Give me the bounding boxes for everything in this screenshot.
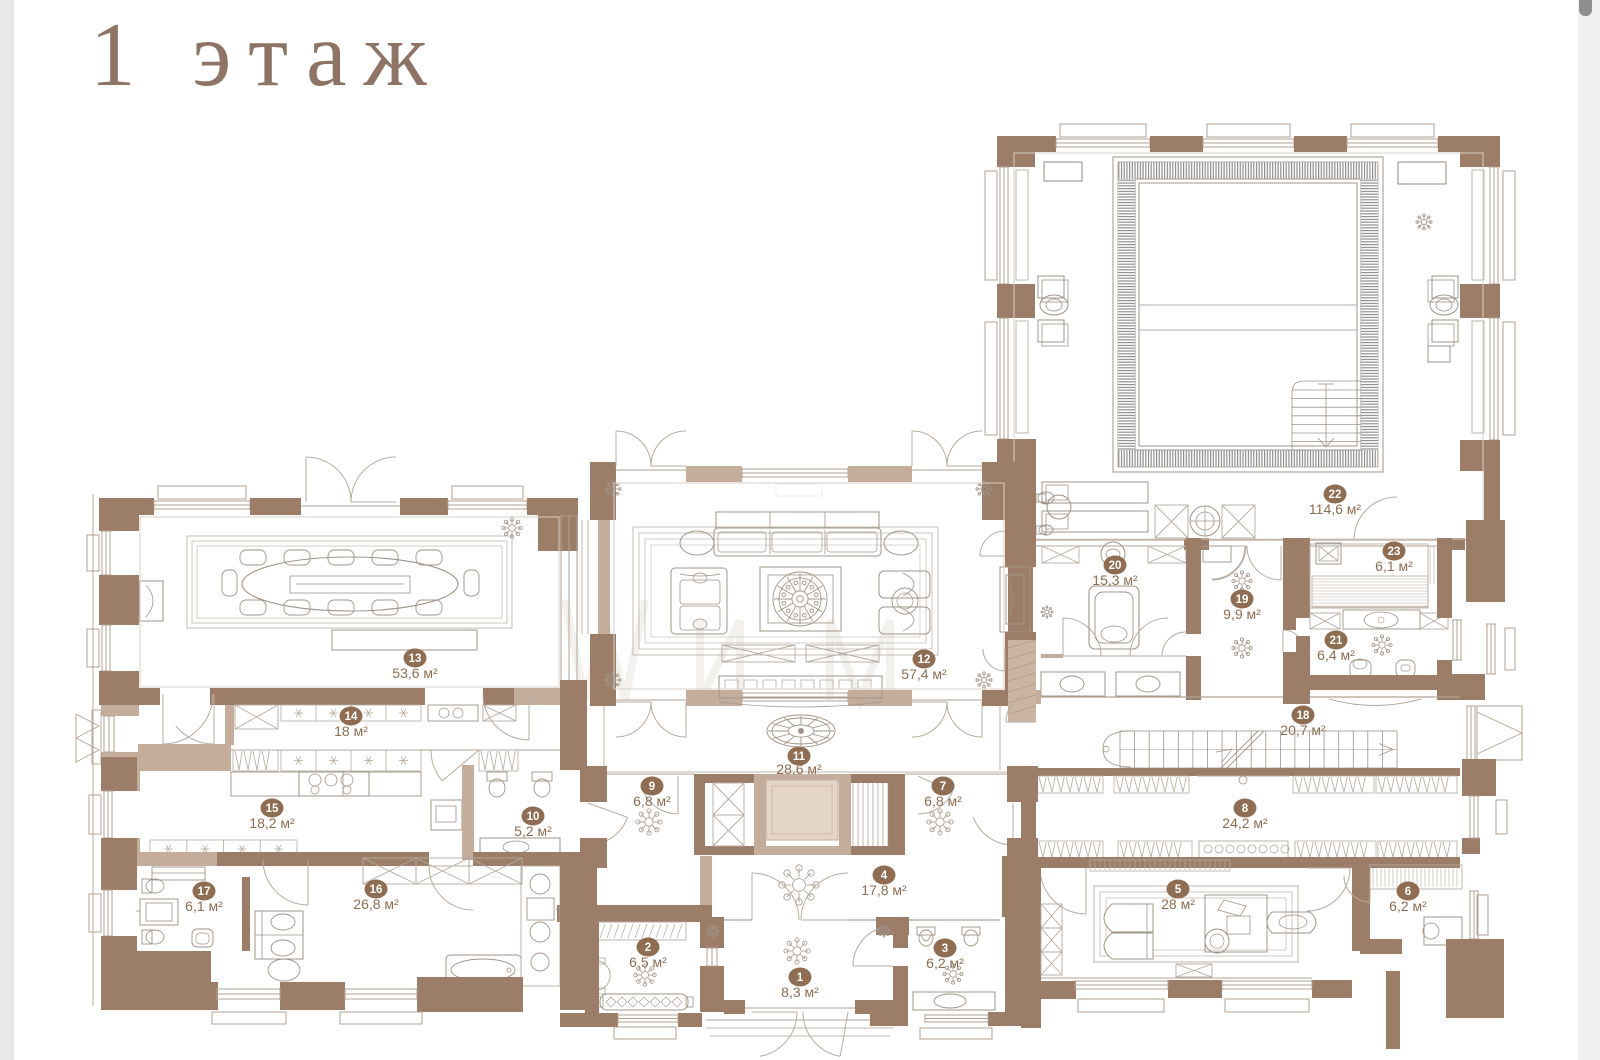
svg-text:24,2 м²: 24,2 м²: [1222, 815, 1268, 831]
svg-text:114,6 м²: 114,6 м²: [1309, 501, 1362, 517]
svg-text:22: 22: [1329, 489, 1342, 501]
svg-text:8: 8: [1242, 803, 1249, 815]
svg-text:18 м²: 18 м²: [334, 723, 368, 739]
svg-text:13: 13: [409, 653, 422, 665]
svg-text:53,6 м²: 53,6 м²: [392, 665, 438, 681]
svg-text:8,3 м²: 8,3 м²: [781, 984, 819, 1000]
svg-text:1: 1: [797, 972, 804, 984]
svg-text:6,1 м²: 6,1 м²: [1375, 558, 1413, 574]
svg-text:6,4 м²: 6,4 м²: [1317, 647, 1355, 663]
svg-text:19: 19: [1236, 594, 1249, 606]
svg-text:7: 7: [940, 781, 946, 793]
svg-text:6,8 м²: 6,8 м²: [633, 793, 671, 809]
svg-text:6,5 м²: 6,5 м²: [629, 954, 667, 970]
svg-text:16: 16: [370, 884, 383, 896]
svg-text:3: 3: [942, 943, 948, 955]
svg-text:4: 4: [881, 870, 888, 882]
svg-text:20: 20: [1109, 560, 1122, 572]
svg-text:15: 15: [266, 803, 279, 815]
svg-text:28 м²: 28 м²: [1161, 896, 1195, 912]
svg-text:2: 2: [645, 942, 651, 954]
svg-text:14: 14: [345, 711, 358, 723]
svg-text:57,4 м²: 57,4 м²: [901, 666, 947, 682]
svg-text:15,3 м²: 15,3 м²: [1092, 572, 1138, 588]
svg-text:23: 23: [1388, 546, 1401, 558]
svg-text:6,1 м²: 6,1 м²: [185, 898, 223, 914]
svg-text:5: 5: [1175, 884, 1182, 896]
svg-text:17,8 м²: 17,8 м²: [861, 882, 907, 898]
svg-text:12: 12: [918, 654, 931, 666]
svg-text:5,2 м²: 5,2 м²: [514, 823, 552, 839]
svg-text:18: 18: [1297, 710, 1310, 722]
svg-text:6: 6: [1405, 886, 1411, 898]
svg-text:26,8 м²: 26,8 м²: [353, 896, 399, 912]
svg-text:21: 21: [1330, 635, 1343, 647]
svg-text:6,8 м²: 6,8 м²: [924, 793, 962, 809]
svg-text:17: 17: [198, 886, 211, 898]
svg-text:18,2 м²: 18,2 м²: [249, 815, 295, 831]
svg-text:1 этаж: 1 этаж: [90, 4, 443, 105]
svg-text:9,9 м²: 9,9 м²: [1223, 606, 1261, 622]
svg-text:10: 10: [527, 811, 540, 823]
svg-text:20,7 м²: 20,7 м²: [1280, 722, 1326, 738]
svg-text:9: 9: [649, 781, 655, 793]
svg-text:6,2 м²: 6,2 м²: [1389, 898, 1427, 914]
